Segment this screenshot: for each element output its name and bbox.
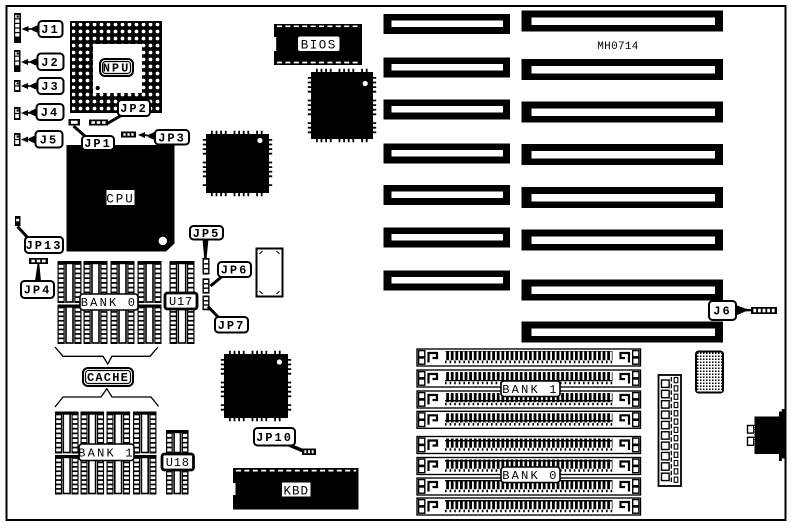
svg-text:NPU: NPU — [103, 62, 131, 76]
svg-text:U17: U17 — [169, 295, 193, 309]
svg-text:JP3: JP3 — [158, 131, 186, 145]
svg-text:MH0714: MH0714 — [597, 41, 639, 53]
svg-text:J2: J2 — [41, 56, 59, 70]
svg-text:J4: J4 — [41, 106, 59, 120]
svg-text:KBD: KBD — [283, 484, 309, 498]
svg-text:CPU: CPU — [106, 192, 135, 206]
svg-text:J5: J5 — [40, 133, 58, 147]
svg-text:BANK 0: BANK 0 — [502, 469, 558, 483]
svg-text:BANK 0: BANK 0 — [81, 296, 137, 310]
svg-text:JP4: JP4 — [24, 284, 52, 298]
svg-text:U18: U18 — [166, 456, 190, 470]
svg-text:JP2: JP2 — [120, 102, 148, 116]
svg-text:BANK 1: BANK 1 — [78, 446, 134, 460]
svg-text:JP10: JP10 — [256, 431, 293, 445]
svg-text:J3: J3 — [41, 80, 59, 94]
svg-text:J1: J1 — [41, 23, 59, 37]
svg-text:CACHE: CACHE — [87, 371, 129, 385]
svg-text:JP5: JP5 — [193, 227, 221, 241]
svg-text:JP1: JP1 — [84, 137, 112, 151]
svg-text:JP13: JP13 — [26, 239, 63, 253]
svg-text:JP6: JP6 — [221, 264, 249, 278]
svg-text:JP7: JP7 — [218, 319, 246, 333]
svg-text:BANK 1: BANK 1 — [502, 383, 558, 397]
svg-text:J6: J6 — [713, 305, 731, 319]
svg-text:BIOS: BIOS — [301, 39, 337, 53]
